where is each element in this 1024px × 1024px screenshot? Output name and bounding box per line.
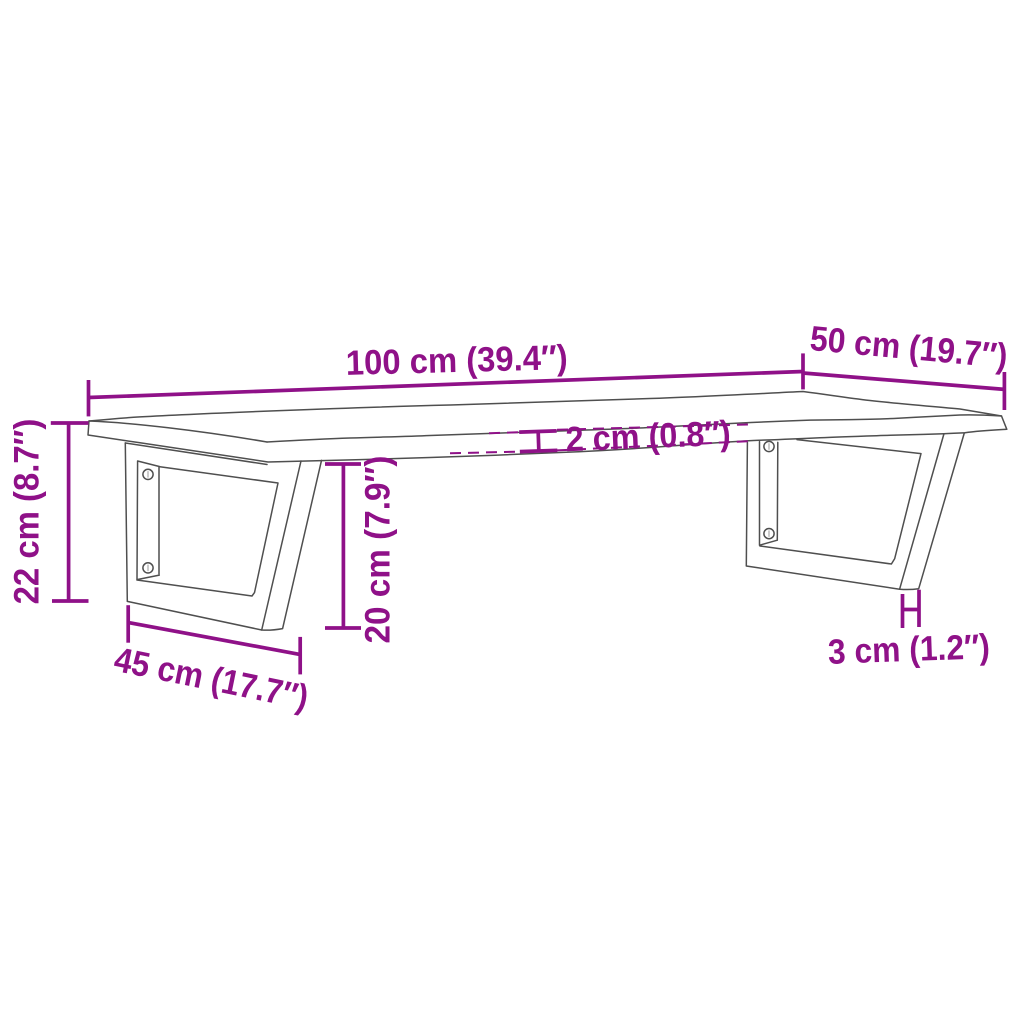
svg-text:2 cm (0.8″): 2 cm (0.8″) xyxy=(565,414,731,460)
svg-text:3 cm (1.2″): 3 cm (1.2″) xyxy=(827,628,990,672)
svg-text:20 cm (7.9″): 20 cm (7.9″) xyxy=(359,456,398,644)
svg-text:100 cm (39.4″): 100 cm (39.4″) xyxy=(345,338,568,383)
svg-text:22 cm (8.7″): 22 cm (8.7″) xyxy=(8,419,47,605)
